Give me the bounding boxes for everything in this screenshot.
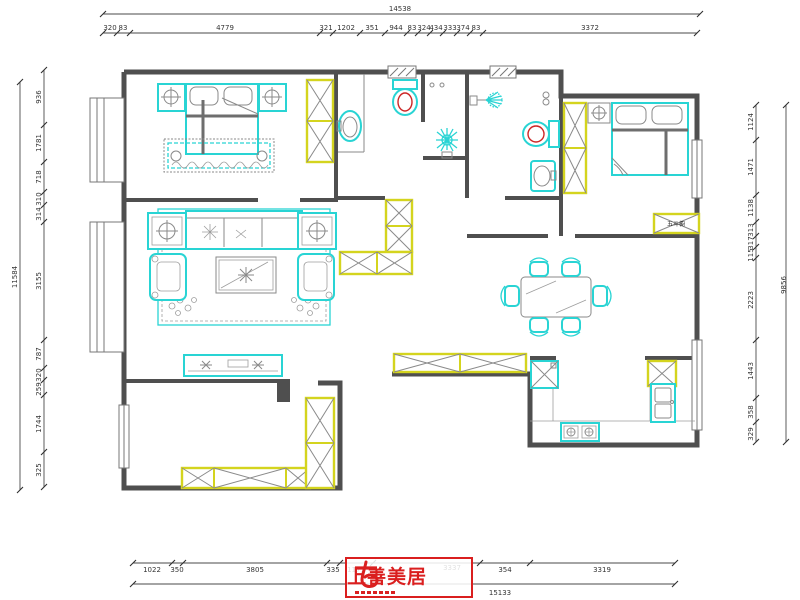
dim-label: 259 [35,382,43,395]
dim-label: 15133 [489,589,511,597]
dining-chair [530,258,548,276]
dim-label: 310 [35,192,43,205]
dim-label: 1022 [143,566,161,574]
dim-label: 325 [35,463,43,476]
wardrobe [564,103,586,193]
dim-label: 1138 [747,199,755,217]
brand-logo-glyph [350,559,382,593]
dim-label: 333 [443,24,456,32]
floor-plan-canvas: 14538 320 83 4779 321 1202 351 944 83 32… [0,0,800,600]
dim-label: 944 [389,24,403,32]
dim-label: 936 [35,90,43,104]
potted-plant [436,128,458,158]
bay-window-living [90,222,124,352]
dim-label: 320 [35,368,43,381]
stove [561,423,599,441]
dining-chair [593,286,611,306]
dim-label: 11584 [11,265,19,288]
dim-label: 83 [408,24,417,32]
hall-cabinet-l [340,200,412,274]
dim-label: 374 [456,24,470,32]
dim-label: 83 [119,24,128,32]
brand-logo-subtext-marks [355,591,395,594]
dim-label: 350 [170,566,183,574]
dim-label: 718 [35,170,43,183]
side-table-lamp [298,213,336,249]
dim-label: 3319 [593,566,611,574]
nightstand-lamp [158,84,185,111]
window-kitchen-right [692,340,702,430]
sideboard-cabinet [394,354,526,372]
tv-stand [184,355,282,376]
hook [440,83,444,87]
wash-basin [337,111,361,141]
kitchen-sink [651,384,675,422]
dim-label: 9856 [780,276,788,294]
bathroom2 [470,92,559,191]
toilet [523,121,559,147]
dim-label: 335 [326,566,339,574]
dim-label: 354 [498,566,512,574]
dim-label: 317 [747,236,755,249]
dim-label: 351 [365,24,378,32]
wardrobe [307,80,333,162]
wall-pillar [277,379,290,402]
kitchen [530,360,695,441]
window-top-1 [388,66,416,78]
dim-label: 83 [472,24,481,32]
wash-basin [531,161,556,191]
nightstand-lamp [588,103,610,123]
dim-label: 1781 [35,134,43,152]
chest-label: 五斗橱 [667,220,685,228]
dim-label: 314 [35,207,43,221]
dim-label: 3372 [581,24,599,32]
toilet [393,80,417,115]
window-top-2 [490,66,516,78]
dim-label: 115 [747,248,755,261]
bottom-room-wardrobes [182,398,334,488]
bed [612,103,688,175]
dining-chair [530,318,548,336]
bedroom1 [158,80,333,172]
five-drawer-chest: 五斗橱 [654,214,699,233]
dining-chair [562,258,580,276]
coffee-table [216,257,276,293]
dim-label: 1124 [747,113,755,131]
armchair [298,254,334,300]
dim-label: 1471 [747,158,755,176]
dim-label: 14538 [389,5,411,13]
sofa [186,211,302,249]
bathroom1 [337,74,444,152]
dim-label: 787 [35,347,43,360]
dim-label: 1443 [747,362,755,380]
furniture: 五斗橱 [148,74,699,488]
side-table-lamp [148,213,186,249]
dining-table [521,277,591,317]
armchair [150,254,186,300]
dining-chair [501,286,519,306]
kitchen-cabinet [648,361,676,386]
fixture-dot [543,92,549,98]
living-room [148,209,336,376]
dim-label: 313 [747,223,755,236]
dim-label: 321 [319,24,332,32]
fixture-dot [543,99,549,105]
fridge [531,361,558,388]
dim-label: 3805 [246,566,264,574]
shower-head [470,92,502,108]
bay-window-bedroom1 [90,98,124,182]
dim-label: 4779 [216,24,234,32]
dim-label: 358 [747,405,755,418]
dim-label: 1744 [35,415,43,433]
dim-label: 2223 [747,291,755,309]
dining-chair [562,318,580,336]
bedroom2: 五斗橱 [564,103,699,233]
dim-label: 434 [429,24,443,32]
dim-label: 1202 [337,24,355,32]
nightstand-lamp [259,84,286,111]
dim-label: 3155 [35,272,43,290]
dim-label: 320 [103,24,116,32]
floor-plan-drawing: 14538 320 83 4779 321 1202 351 944 83 32… [0,0,800,600]
window-bedroom2-right [692,140,702,198]
dim-label: 329 [747,427,755,440]
window-bottom-room [119,405,129,468]
hook [430,83,434,87]
dining-set [501,258,611,336]
brand-logo: 上善美居 [345,557,473,598]
